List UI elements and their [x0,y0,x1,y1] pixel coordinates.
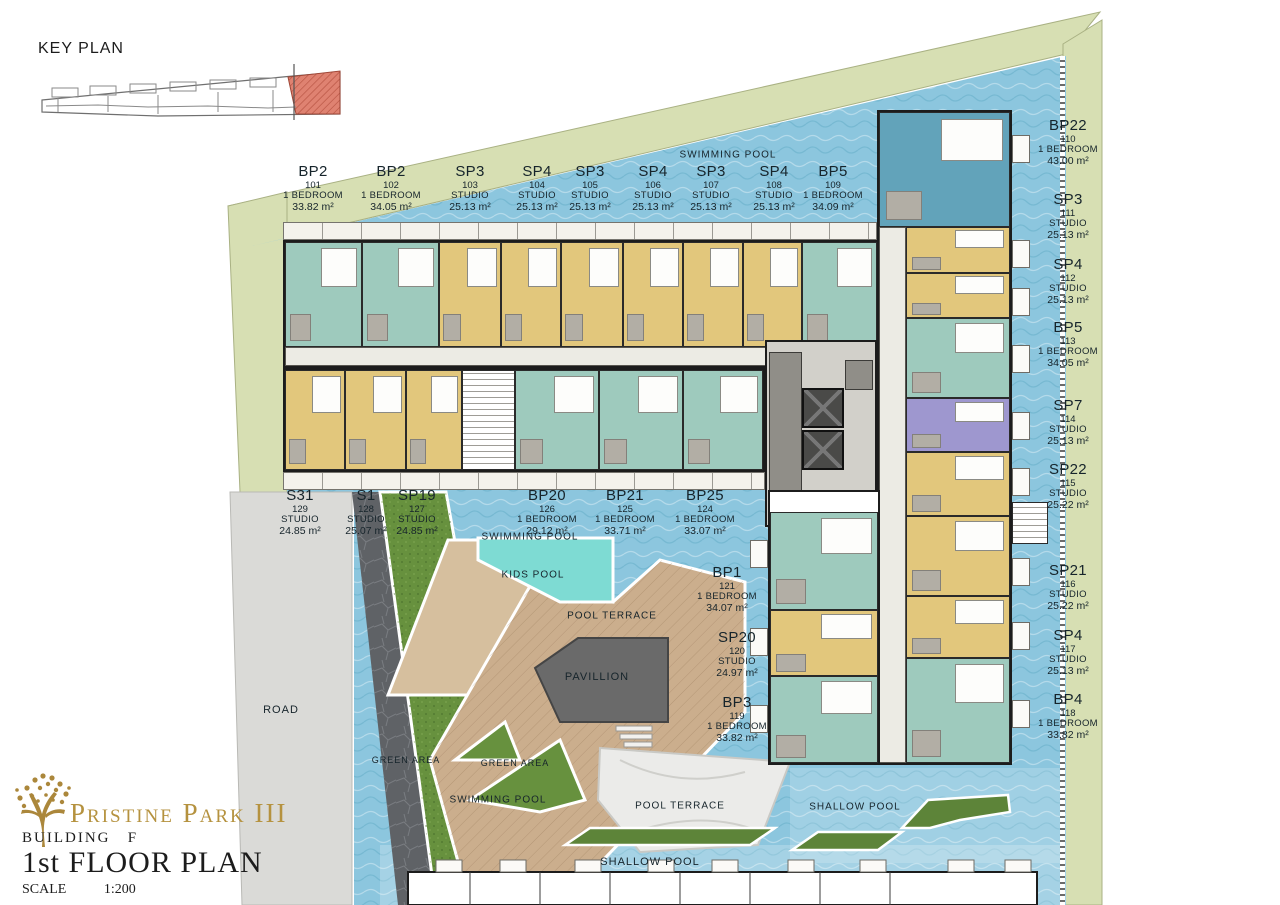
project-name: Pristine Park III [70,798,287,829]
ul-area: 25.13 m² [1047,295,1088,307]
elevator-2 [802,430,844,470]
unit-label-126: BP201261 BEDROOM29.12 m² [517,488,577,538]
unit-119 [770,676,878,763]
ul-area: 25.13 m² [1047,230,1088,242]
unit-118 [906,658,1010,763]
unit-label-129: S31129STUDIO24.85 m² [279,488,320,538]
ul-model: BP5 [1038,320,1098,337]
building-middle-wing [283,368,765,472]
ul-area: 34.05 m² [361,202,421,214]
ul-area: 24.85 m² [279,526,320,538]
ul-area: 25.13 m² [449,202,490,214]
unit-label-128: S1128STUDIO25.07 m² [345,488,386,538]
ul-model: BP3 [707,695,767,712]
ul-model: BP22 [1038,118,1098,135]
unit-label-108: SP4108STUDIO25.13 m² [753,164,794,214]
area-label-swimming-pool-mid: SWIMMING POOL [482,532,579,543]
unit-125 [599,370,683,470]
top-wing-balcony [283,222,877,240]
ul-model: BP5 [803,164,863,181]
unit-108 [743,242,802,347]
unit-104 [501,242,561,347]
ul-model: BP21 [595,488,655,505]
building-right-wing [877,110,1012,765]
area-label-shallow-pool-bottom: SHALLOW POOL [600,856,699,868]
balcony-tab [1012,135,1030,163]
unit-label-124: BP251241 BEDROOM33.07 m² [675,488,735,538]
unit-label-106: SP4106STUDIO25.13 m² [632,164,673,214]
ul-model: S1 [345,488,386,505]
ul-area: 34.05 m² [1038,358,1098,370]
unit-105 [561,242,623,347]
unit-111 [906,227,1010,273]
ul-model: SP7 [1047,398,1088,415]
unit-110 [879,112,1010,227]
unit-label-103: SP3103STUDIO25.13 m² [449,164,490,214]
unit-label-115: SP22115STUDIO25.22 m² [1047,462,1088,512]
road-surface [230,492,352,905]
ul-area: 25.13 m² [516,202,557,214]
unit-117 [906,596,1010,658]
area-label-pavillion: PAVILLION [565,671,629,683]
pool-steps [620,734,652,739]
ul-area: 34.09 m² [803,202,863,214]
ul-model: SP4 [1047,257,1088,274]
unit-label-127: SP19127STUDIO24.85 m² [396,488,437,538]
unit-label-121: BP11211 BEDROOM34.07 m² [697,565,757,615]
unit-128 [345,370,406,470]
balcony-tab [1012,288,1030,316]
unit-label-116: SP21116STUDIO25.22 m² [1047,563,1088,613]
area-label-green-area-left: GREEN AREA [372,755,441,765]
unit-label-109: BP51091 BEDROOM34.09 m² [803,164,863,214]
area-label-kids-pool: KIDS POOL [502,570,565,581]
unit-126 [515,370,599,470]
ul-model: SP20 [716,630,757,647]
ul-model: SP3 [449,164,490,181]
balcony-tab [1012,345,1030,373]
stairwell-middle [462,370,515,470]
service-room [845,360,873,390]
ul-model: BP2 [361,164,421,181]
unit-label-117: SP4117STUDIO25.13 m² [1047,628,1088,678]
ul-model: SP3 [690,164,731,181]
ul-model: SP4 [632,164,673,181]
balcony-tab [1012,468,1030,496]
key-plan: KEY PLAN [38,40,350,127]
unit-101 [285,242,362,347]
ul-model: SP19 [396,488,437,505]
unit-label-102: BP21021 BEDROOM34.05 m² [361,164,421,214]
area-label-pool-terrace-mid: POOL TERRACE [567,611,657,622]
ul-model: BP2 [283,164,343,181]
unit-120 [770,610,878,676]
scale-note: SCALE 1:200 [22,882,136,898]
building-lower-column [768,490,880,765]
unit-114 [906,398,1010,452]
key-plan-drawing [38,62,350,122]
unit-109 [802,242,877,347]
key-plan-title: KEY PLAN [38,40,350,58]
unit-115 [906,452,1010,516]
balcony-tab [1012,412,1030,440]
ul-area: 25.13 m² [1047,436,1088,448]
balcony-tab [750,540,768,568]
unit-label-104: SP4104STUDIO25.13 m² [516,164,557,214]
unit-label-119: BP31191 BEDROOM33.82 m² [707,695,767,745]
ul-area: 33.82 m² [283,202,343,214]
area-label-shallow-pool-right: SHALLOW POOL [809,802,900,813]
unit-116 [906,516,1010,596]
unit-103 [439,242,501,347]
unit-label-111: SP3111STUDIO25.13 m² [1047,192,1088,242]
unit-label-112: SP4112STUDIO25.13 m² [1047,257,1088,307]
unit-121 [770,512,878,610]
unit-label-110: BP221101 BEDROOM43.00 m² [1038,118,1098,168]
pool-steps [616,726,652,731]
ul-model: SP4 [1047,628,1088,645]
unit-label-101: BP21011 BEDROOM33.82 m² [283,164,343,214]
ul-model: S31 [279,488,320,505]
ul-area: 25.22 m² [1047,601,1088,613]
area-label-green-area-right: GREEN AREA [481,758,550,768]
ul-model: BP1 [697,565,757,582]
site-border-left [228,192,287,492]
ul-area: 33.82 m² [1038,730,1098,742]
ul-area: 33.07 m² [675,526,735,538]
area-label-road: ROAD [263,704,299,716]
unit-label-120: SP20120STUDIO24.97 m² [716,630,757,680]
unit-label-113: BP51131 BEDROOM34.05 m² [1038,320,1098,370]
unit-label-107: SP3107STUDIO25.13 m² [690,164,731,214]
floor-plan-page: KEY PLAN [0,0,1280,905]
ul-area: 25.13 m² [753,202,794,214]
ul-model: SP4 [753,164,794,181]
ul-model: BP20 [517,488,577,505]
ul-model: SP21 [1047,563,1088,580]
area-label-swimming-pool-top: SWIMMING POOL [680,150,777,161]
ul-area: 25.13 m² [632,202,673,214]
unit-124 [683,370,763,470]
ul-area: 25.13 m² [569,202,610,214]
ul-model: SP3 [569,164,610,181]
green-ribbon-1 [565,828,775,845]
right-wing-corridor [879,227,906,763]
pool-steps [624,742,652,747]
ul-area: 24.85 m² [396,526,437,538]
unit-113 [906,318,1010,398]
floor-plan-title: 1st FLOOR PLAN [22,846,263,880]
unit-label-125: BP211251 BEDROOM33.71 m² [595,488,655,538]
ul-area: 25.07 m² [345,526,386,538]
ul-model: SP22 [1047,462,1088,479]
ul-area: 43.00 m² [1038,156,1098,168]
ul-area: 25.13 m² [690,202,731,214]
balcony-tab [1012,622,1030,650]
unit-label-114: SP7114STUDIO25.13 m² [1047,398,1088,448]
ul-model: BP4 [1038,692,1098,709]
unit-106 [623,242,683,347]
balcony-tab [1012,558,1030,586]
ul-area: 34.07 m² [697,603,757,615]
elevator-1 [802,388,844,428]
ul-area: 25.22 m² [1047,500,1088,512]
ul-area: 24.97 m² [716,668,757,680]
unit-129 [285,370,345,470]
balcony-tab [1012,240,1030,268]
ul-model: SP3 [1047,192,1088,209]
ul-area: 25.13 m² [1047,666,1088,678]
area-label-swimming-pool-bottom: SWIMMING POOL [450,795,547,806]
unit-label-118: BP41181 BEDROOM33.82 m² [1038,692,1098,742]
ul-area: 33.71 m² [595,526,655,538]
unit-102 [362,242,439,347]
ul-model: BP25 [675,488,735,505]
ul-area: 33.82 m² [707,733,767,745]
ul-model: SP4 [516,164,557,181]
unit-112 [906,273,1010,318]
area-label-pool-terrace-bottom: POOL TERRACE [635,801,725,812]
unit-127 [406,370,462,470]
unit-label-105: SP3105STUDIO25.13 m² [569,164,610,214]
balcony-tab [1012,700,1030,728]
building-label: BUILDING F [22,830,138,847]
unit-107 [683,242,743,347]
stair-pod [1012,502,1048,544]
